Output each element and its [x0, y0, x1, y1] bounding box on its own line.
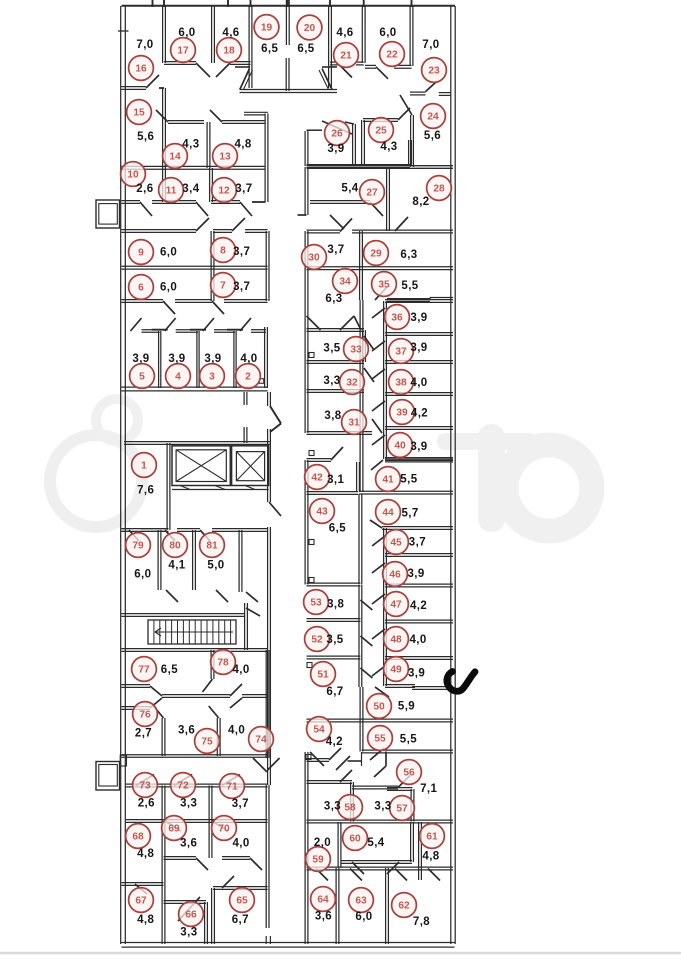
- svg-text:6,0: 6,0: [160, 247, 177, 259]
- svg-text:44: 44: [382, 508, 394, 519]
- svg-text:74: 74: [255, 735, 267, 746]
- svg-text:17: 17: [177, 46, 189, 57]
- svg-text:3,7: 3,7: [409, 536, 426, 548]
- svg-text:49: 49: [390, 665, 402, 676]
- svg-text:80: 80: [169, 541, 181, 552]
- svg-text:2,7: 2,7: [135, 728, 152, 740]
- svg-text:56: 56: [403, 768, 415, 779]
- svg-text:20: 20: [304, 23, 316, 34]
- svg-text:5,5: 5,5: [401, 280, 418, 292]
- svg-text:25: 25: [375, 126, 387, 137]
- svg-text:3,9: 3,9: [410, 441, 427, 453]
- svg-text:46: 46: [389, 570, 401, 581]
- svg-text:81: 81: [206, 541, 218, 552]
- svg-text:3,7: 3,7: [232, 798, 249, 810]
- svg-text:3,6: 3,6: [178, 725, 195, 737]
- svg-text:5: 5: [139, 372, 145, 383]
- svg-text:7: 7: [220, 281, 226, 292]
- svg-text:8: 8: [220, 246, 226, 257]
- svg-text:34: 34: [339, 277, 351, 288]
- svg-text:2,6: 2,6: [138, 798, 155, 810]
- svg-text:3,9: 3,9: [204, 353, 221, 365]
- svg-text:6,0: 6,0: [355, 911, 372, 923]
- svg-text:3,9: 3,9: [327, 143, 344, 155]
- svg-text:21: 21: [340, 51, 352, 62]
- svg-text:35: 35: [378, 280, 390, 291]
- svg-text:28: 28: [433, 184, 445, 195]
- svg-text:19: 19: [261, 23, 273, 34]
- svg-text:6,3: 6,3: [400, 249, 417, 261]
- svg-text:76: 76: [139, 710, 151, 721]
- svg-text:4,2: 4,2: [410, 600, 427, 612]
- svg-text:5,5: 5,5: [400, 473, 417, 485]
- svg-text:3,7: 3,7: [327, 244, 344, 256]
- svg-text:3,3: 3,3: [374, 801, 391, 813]
- svg-text:40: 40: [394, 441, 406, 452]
- svg-text:14: 14: [169, 152, 181, 163]
- svg-text:4,0: 4,0: [410, 634, 427, 646]
- svg-text:3,9: 3,9: [408, 667, 425, 679]
- svg-text:18: 18: [223, 46, 235, 57]
- svg-text:66: 66: [185, 910, 197, 921]
- svg-text:16: 16: [135, 64, 147, 75]
- svg-text:23: 23: [428, 66, 440, 77]
- svg-text:10: 10: [127, 170, 139, 181]
- svg-text:8,2: 8,2: [412, 196, 429, 208]
- svg-text:30: 30: [308, 253, 320, 264]
- svg-text:50: 50: [373, 702, 385, 713]
- svg-text:52: 52: [311, 635, 323, 646]
- svg-text:3,9: 3,9: [132, 353, 149, 365]
- svg-text:15: 15: [133, 108, 145, 119]
- svg-text:60: 60: [349, 834, 361, 845]
- svg-text:4,6: 4,6: [336, 27, 353, 39]
- svg-text:2,0: 2,0: [314, 837, 331, 849]
- svg-text:3,3: 3,3: [180, 798, 197, 810]
- svg-text:75: 75: [201, 737, 213, 748]
- svg-text:4,8: 4,8: [235, 138, 252, 150]
- svg-text:12: 12: [218, 186, 230, 197]
- svg-text:4,8: 4,8: [422, 851, 439, 863]
- svg-text:5,5: 5,5: [400, 733, 417, 745]
- svg-text:6,7: 6,7: [326, 686, 343, 698]
- svg-text:33: 33: [350, 345, 362, 356]
- svg-text:5,4: 5,4: [341, 183, 358, 195]
- svg-text:47: 47: [390, 600, 402, 611]
- svg-text:27: 27: [366, 188, 378, 199]
- svg-text:3,9: 3,9: [410, 342, 427, 354]
- svg-text:59: 59: [312, 855, 324, 866]
- svg-text:62: 62: [398, 901, 410, 912]
- svg-text:42: 42: [311, 473, 323, 484]
- svg-text:45: 45: [390, 538, 402, 549]
- svg-text:4,0: 4,0: [228, 725, 245, 737]
- svg-text:6,5: 6,5: [261, 43, 278, 55]
- svg-text:29: 29: [370, 249, 382, 260]
- svg-text:6,0: 6,0: [160, 282, 177, 294]
- svg-text:79: 79: [132, 541, 144, 552]
- svg-text:69: 69: [168, 824, 180, 835]
- svg-text:57: 57: [396, 804, 408, 815]
- svg-text:6,0: 6,0: [379, 27, 396, 39]
- svg-text:65: 65: [236, 896, 248, 907]
- svg-text:53: 53: [310, 598, 322, 609]
- svg-text:51: 51: [317, 670, 329, 681]
- svg-text:4,0: 4,0: [240, 353, 257, 365]
- svg-text:3,7: 3,7: [233, 281, 250, 293]
- svg-text:22: 22: [386, 50, 398, 61]
- svg-text:3,3: 3,3: [323, 375, 340, 387]
- svg-text:54: 54: [313, 725, 325, 736]
- svg-text:64: 64: [317, 895, 329, 906]
- svg-text:72: 72: [177, 781, 189, 792]
- svg-text:4,3: 4,3: [380, 141, 397, 153]
- svg-text:36: 36: [391, 313, 403, 324]
- svg-text:3,7: 3,7: [235, 183, 252, 195]
- svg-text:3,8: 3,8: [324, 410, 341, 422]
- svg-text:61: 61: [426, 832, 438, 843]
- svg-text:3,9: 3,9: [410, 312, 427, 324]
- svg-text:3,9: 3,9: [168, 353, 185, 365]
- svg-text:4: 4: [175, 372, 181, 383]
- svg-text:4,6: 4,6: [222, 27, 239, 39]
- svg-text:63: 63: [355, 896, 367, 907]
- svg-text:41: 41: [382, 475, 394, 486]
- svg-text:1: 1: [141, 461, 147, 472]
- svg-text:13: 13: [219, 152, 231, 163]
- svg-text:4,0: 4,0: [233, 837, 250, 849]
- svg-text:6,0: 6,0: [134, 569, 151, 581]
- svg-text:7,0: 7,0: [422, 39, 439, 51]
- svg-text:2,6: 2,6: [136, 183, 153, 195]
- svg-text:5,6: 5,6: [424, 130, 441, 142]
- svg-text:3,7: 3,7: [233, 246, 250, 258]
- svg-text:3,5: 3,5: [323, 343, 340, 355]
- svg-text:3,8: 3,8: [327, 599, 344, 611]
- svg-text:5,7: 5,7: [402, 507, 419, 519]
- svg-text:48: 48: [390, 635, 402, 646]
- svg-text:3,6: 3,6: [315, 911, 332, 923]
- svg-text:4,0: 4,0: [233, 664, 250, 676]
- svg-text:26: 26: [331, 129, 343, 140]
- svg-text:37: 37: [395, 347, 407, 358]
- svg-text:3,3: 3,3: [180, 927, 197, 939]
- svg-text:3,1: 3,1: [327, 474, 344, 486]
- svg-text:4,3: 4,3: [182, 138, 199, 150]
- svg-text:71: 71: [226, 782, 238, 793]
- svg-text:4,2: 4,2: [326, 736, 343, 748]
- svg-text:31: 31: [348, 418, 360, 429]
- svg-text:6,5: 6,5: [161, 664, 178, 676]
- svg-text:78: 78: [217, 658, 229, 669]
- svg-text:3,5: 3,5: [326, 634, 343, 646]
- svg-text:70: 70: [218, 824, 230, 835]
- svg-text:2: 2: [245, 372, 251, 383]
- svg-text:67: 67: [135, 896, 147, 907]
- svg-text:5,6: 5,6: [137, 131, 154, 143]
- svg-text:4,2: 4,2: [411, 408, 428, 420]
- svg-text:3,3: 3,3: [324, 801, 341, 813]
- svg-text:55: 55: [374, 734, 386, 745]
- svg-text:77: 77: [138, 665, 150, 676]
- svg-text:5,0: 5,0: [207, 560, 224, 572]
- svg-text:4,8: 4,8: [137, 914, 154, 926]
- svg-text:4,1: 4,1: [168, 560, 185, 572]
- svg-text:9: 9: [138, 248, 144, 259]
- svg-text:39: 39: [396, 408, 408, 419]
- svg-text:11: 11: [166, 186, 177, 197]
- svg-text:32: 32: [346, 378, 358, 389]
- svg-text:38: 38: [395, 378, 407, 389]
- svg-text:6: 6: [138, 283, 144, 294]
- svg-text:43: 43: [316, 507, 328, 518]
- svg-text:5,9: 5,9: [398, 700, 415, 712]
- svg-text:73: 73: [139, 781, 151, 792]
- svg-text:7,6: 7,6: [137, 485, 154, 497]
- svg-text:6,5: 6,5: [329, 522, 346, 534]
- svg-text:5,4: 5,4: [367, 837, 384, 849]
- svg-text:3,4: 3,4: [182, 183, 199, 195]
- svg-text:6,0: 6,0: [178, 27, 195, 39]
- svg-text:4,0: 4,0: [410, 377, 427, 389]
- svg-text:7,1: 7,1: [420, 783, 437, 795]
- svg-text:24: 24: [427, 112, 439, 123]
- svg-text:7,0: 7,0: [136, 39, 153, 51]
- svg-text:6,7: 6,7: [232, 914, 249, 926]
- svg-text:4,8: 4,8: [137, 848, 154, 860]
- svg-text:3,6: 3,6: [180, 837, 197, 849]
- svg-text:3,9: 3,9: [408, 568, 425, 580]
- svg-text:6,3: 6,3: [325, 293, 342, 305]
- svg-text:3: 3: [209, 372, 215, 383]
- svg-text:68: 68: [132, 832, 144, 843]
- svg-text:6,5: 6,5: [297, 43, 314, 55]
- svg-text:58: 58: [344, 803, 356, 814]
- svg-text:7,8: 7,8: [413, 916, 430, 928]
